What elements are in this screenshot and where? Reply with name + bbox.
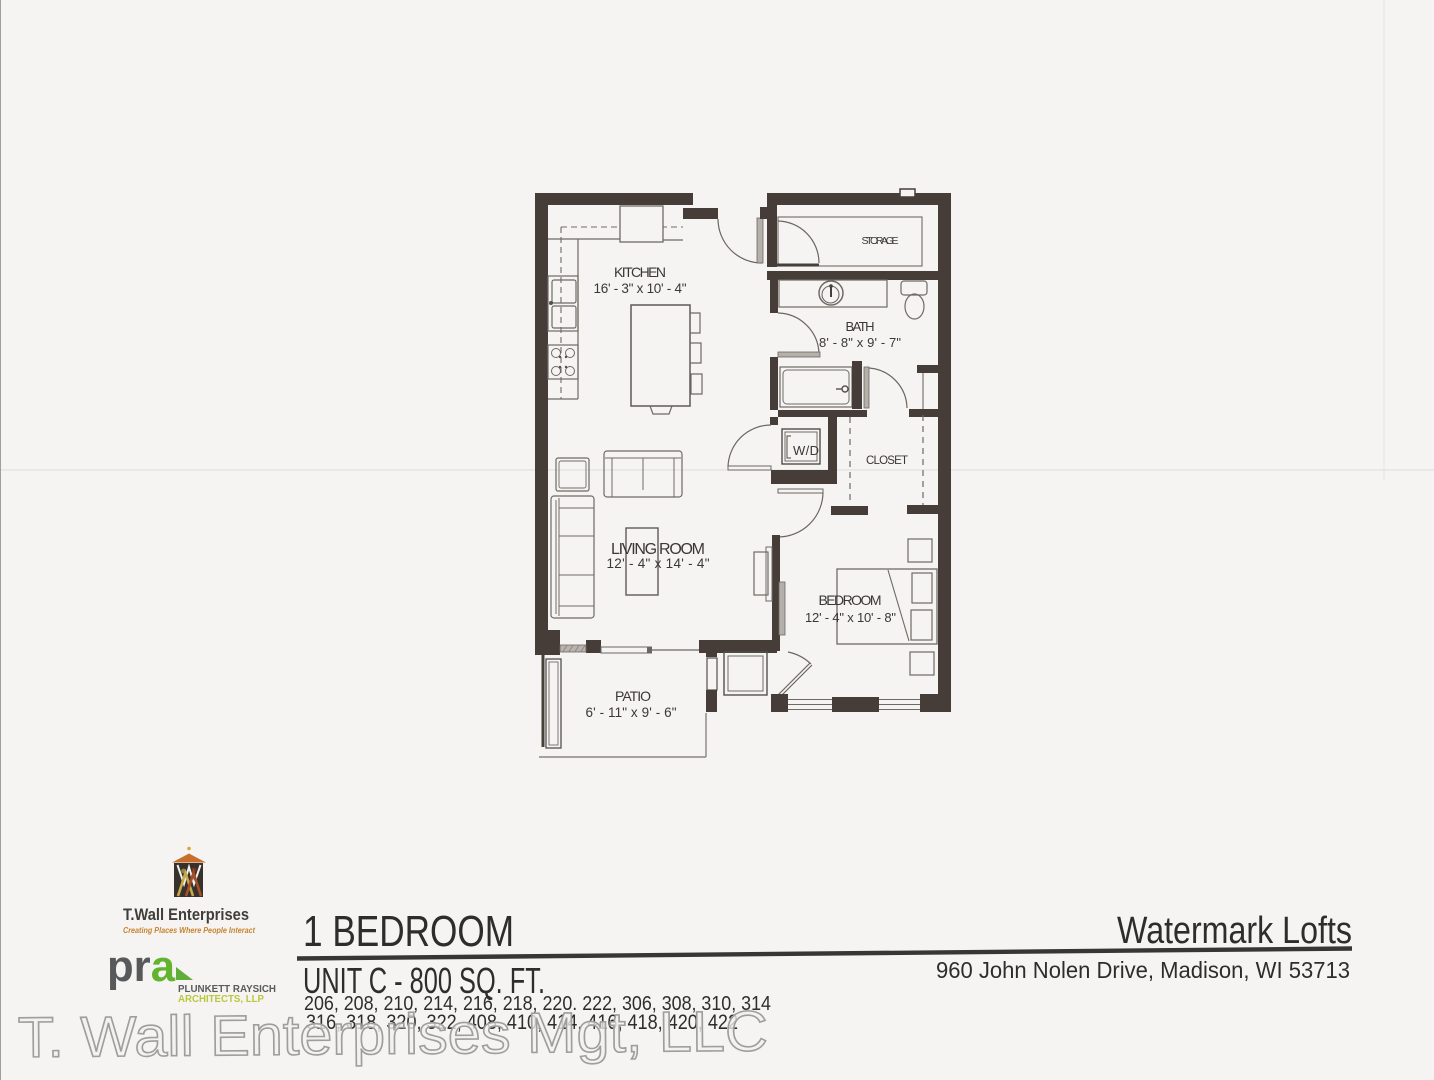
svg-text:8' - 8" x 9' - 7": 8' - 8" x 9' - 7"	[819, 335, 901, 350]
svg-text:BEDROOM: BEDROOM	[819, 592, 882, 608]
svg-text:pra: pra	[107, 942, 176, 991]
svg-text:W/D: W/D	[793, 443, 819, 458]
svg-text:12' - 4" x 14' - 4": 12' - 4" x 14' - 4"	[607, 556, 710, 571]
svg-text:Creating Places Where People I: Creating Places Where People Interact	[123, 926, 255, 935]
svg-text:BATH: BATH	[846, 319, 875, 334]
svg-text:PATIO: PATIO	[615, 688, 651, 704]
svg-text:960 John Nolen Drive, Madison,: 960 John Nolen Drive, Madison, WI 53713	[936, 957, 1350, 983]
svg-text:1 BEDROOM: 1 BEDROOM	[303, 907, 514, 956]
svg-text:CLOSET: CLOSET	[866, 455, 908, 467]
svg-text:Watermark Lofts: Watermark Lofts	[1117, 910, 1352, 952]
svg-text:KITCHEN: KITCHEN	[614, 264, 666, 280]
svg-text:6' - 11" x 9' - 6": 6' - 11" x 9' - 6"	[586, 705, 677, 720]
svg-text:12' - 4" x 10' - 8": 12' - 4" x 10' - 8"	[805, 610, 896, 625]
svg-text:T.Wall Enterprises: T.Wall Enterprises	[123, 905, 249, 924]
svg-text:16' - 3" x 10' - 4": 16' - 3" x 10' - 4"	[594, 281, 687, 296]
svg-text:T. Wall Enterprises Mgt, LLC: T. Wall Enterprises Mgt, LLC	[18, 999, 769, 1070]
svg-text:STORAGE: STORAGE	[862, 235, 899, 247]
